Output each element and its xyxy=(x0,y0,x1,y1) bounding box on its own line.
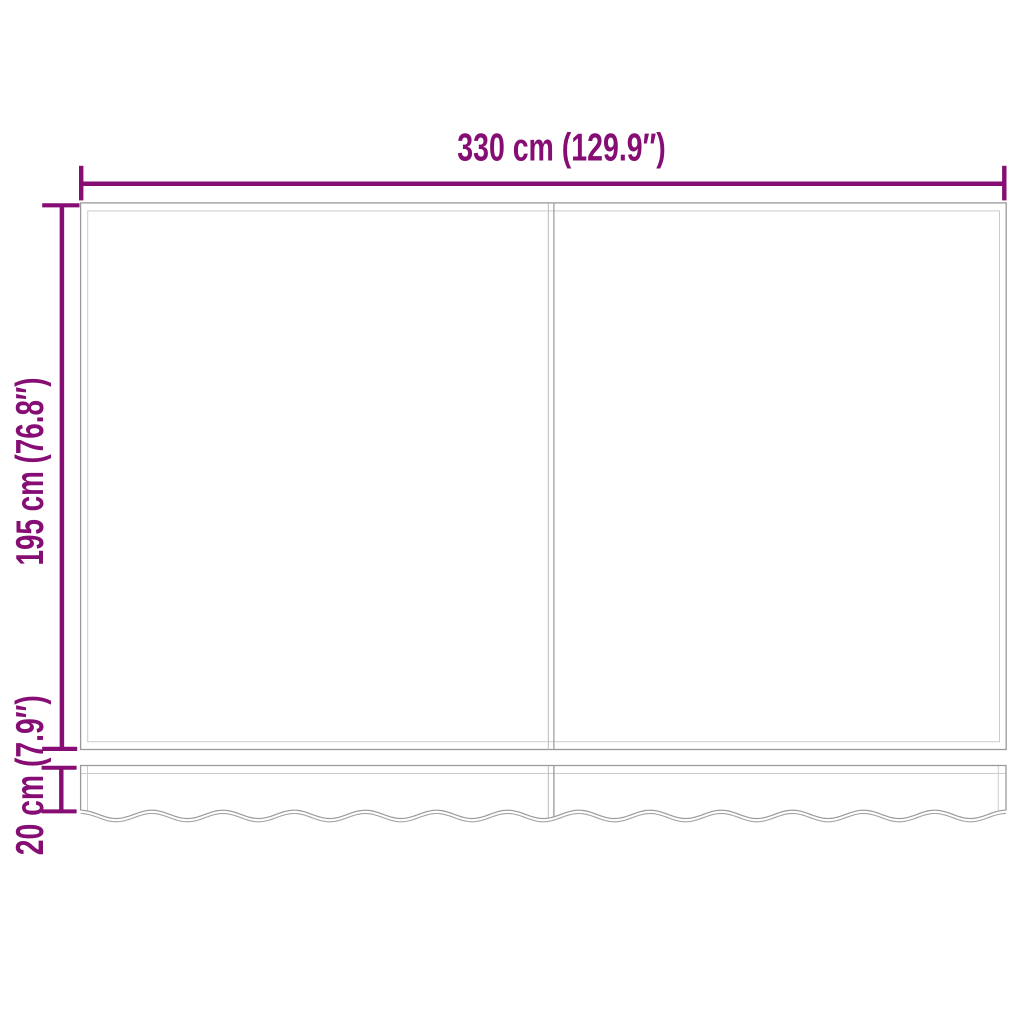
svg-text:20 cm (7.9″): 20 cm (7.9″) xyxy=(9,695,52,855)
svg-text:330 cm (129.9″): 330 cm (129.9″) xyxy=(457,126,666,169)
svg-text:195 cm (76.8″): 195 cm (76.8″) xyxy=(9,378,52,566)
